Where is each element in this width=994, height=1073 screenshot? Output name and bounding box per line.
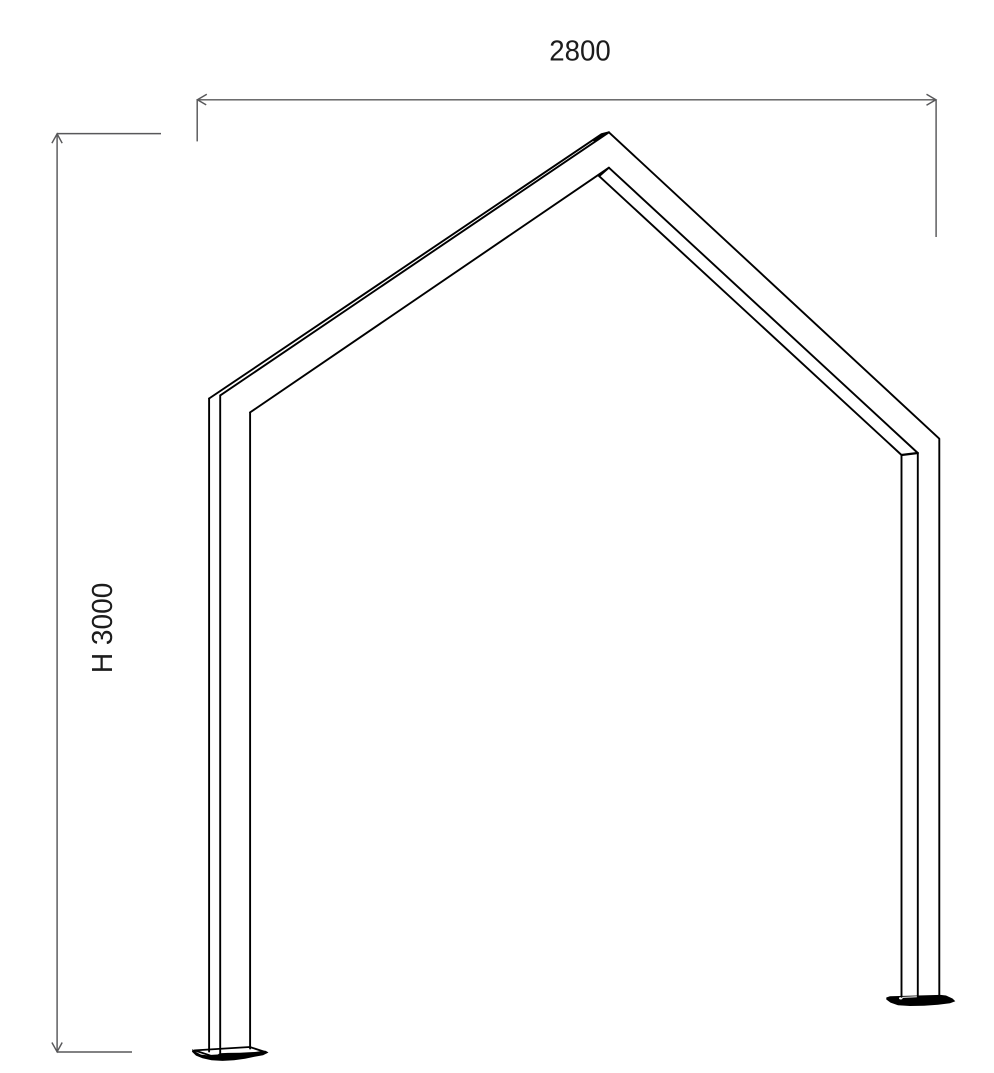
- svg-text:2800: 2800: [549, 36, 611, 68]
- svg-text:H 3000: H 3000: [87, 583, 119, 674]
